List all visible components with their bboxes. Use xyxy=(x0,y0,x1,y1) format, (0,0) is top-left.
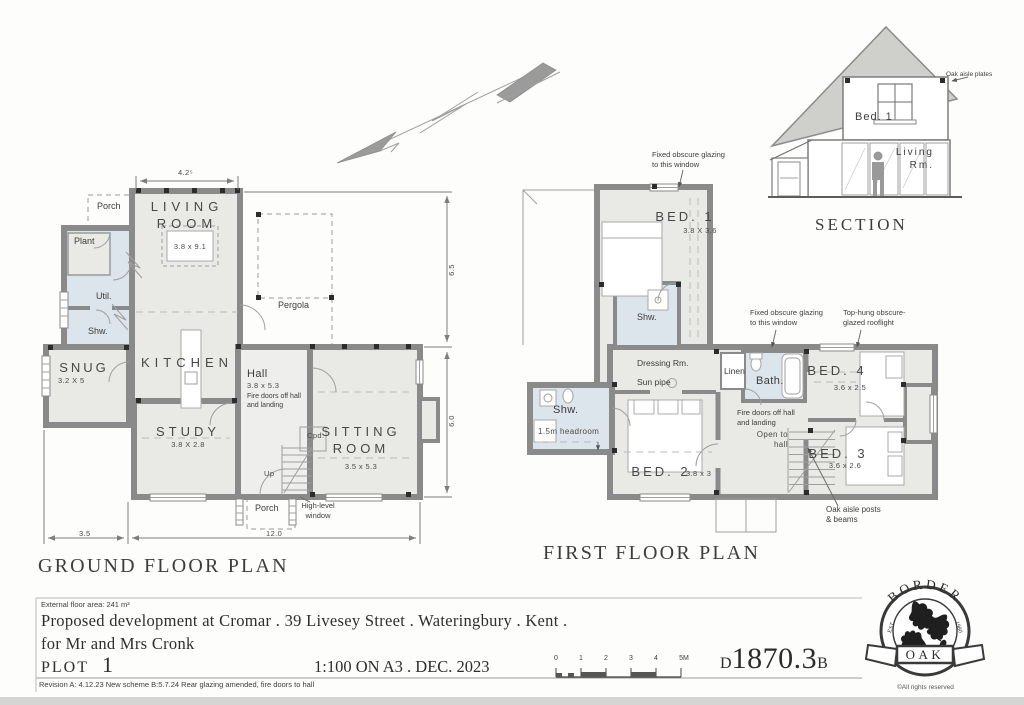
high-level-window-note: High-level window xyxy=(301,501,334,520)
bed4-label: BED. 4 xyxy=(807,363,866,380)
drawing-number: D 1870.3 B xyxy=(720,640,828,678)
dim-bottom-right: 12.0 xyxy=(266,529,282,539)
fire-doors-note-first: Fire doors off hall and landing xyxy=(737,408,795,427)
cupboard-label: Cpd. xyxy=(307,431,324,441)
bed3-dims: 3.6 x 2.6 xyxy=(829,461,861,471)
floor-area-note: External floor area: 241 m² xyxy=(41,600,130,610)
kitchen-label: KITCHEN xyxy=(141,355,233,372)
scale-text: 1:100 ON A3 . DEC. 2023 xyxy=(314,656,490,677)
living-room-label: LIVING ROOM xyxy=(151,199,224,232)
scale-tick-0: 0 xyxy=(554,655,558,664)
revision-note: Revision A: 4.12.23 New scheme B:5.7.24 … xyxy=(39,680,314,690)
bed2-dims: 3.8 x 3 xyxy=(686,469,711,479)
shower-label-ground: Shw. xyxy=(88,326,108,338)
dim-bottom-left: 3.5 xyxy=(79,529,91,539)
plant-label: Plant xyxy=(74,236,95,248)
bed4-dims: 3.6 x 2.5 xyxy=(834,383,866,393)
linen-label: Linen xyxy=(724,366,745,377)
open-to-hall-note: Open to hall xyxy=(746,430,788,450)
section-living-label: Living Rm. xyxy=(884,147,934,173)
sun-pipe-label: Sun pipe xyxy=(637,377,671,388)
north-arrow-icon xyxy=(337,63,560,163)
scale-tick-2: 2 xyxy=(604,655,608,664)
architectural-drawing-sheet: BORDER OAK EST. 1980 LIVING ROOM 3.8 x 9… xyxy=(0,0,1024,705)
hall-fire-doors-note: Fire doors off hall and landing xyxy=(247,393,301,411)
dim-top: 4.2⁵ xyxy=(178,168,193,178)
bath-label: Bath. xyxy=(756,374,784,388)
dim-right-lower: 6.0 xyxy=(447,415,457,427)
plot-number: 1 xyxy=(102,651,113,679)
plot-label: PLOT xyxy=(41,658,89,678)
living-room-dims: 3.8 x 9.1 xyxy=(174,242,206,252)
pergola-label: Pergola xyxy=(278,300,309,312)
dressing-room-label: Dressing Rm. xyxy=(637,358,688,369)
section-title: SECTION xyxy=(815,214,908,236)
snug-label: SNUG xyxy=(59,360,109,377)
copyright-note: ©All rights reserved xyxy=(897,684,954,692)
study-dims: 3.8 X 2.8 xyxy=(171,440,205,450)
study-label: STUDY xyxy=(156,424,220,441)
sitting-room-area xyxy=(310,347,420,497)
hall-label: Hall xyxy=(247,367,268,381)
bed2-label: BED. 2 xyxy=(631,464,690,481)
headroom-note: 1.5m headroom xyxy=(538,427,599,437)
shower-left-label: Shw. xyxy=(553,403,578,417)
sitting-room-label: SITTING ROOM xyxy=(321,424,400,457)
fireplace-bay xyxy=(420,399,438,441)
logo-banner-text: OAK xyxy=(906,647,945,662)
oak-aisle-plates-note: Oak aisle plates xyxy=(946,71,992,79)
porch-bottom-label: Porch xyxy=(255,503,279,515)
snug-dims: 3.2 X 5 xyxy=(58,376,85,386)
sitting-room-dims: 3.5 x 5.3 xyxy=(345,462,377,472)
first-bay xyxy=(905,385,933,442)
ground-floor-title: GROUND FLOOR PLAN xyxy=(38,554,289,580)
section-bed1-label: Bed. 1 xyxy=(855,110,893,124)
scale-tick-1: 1 xyxy=(579,655,583,664)
first-floor-title: FIRST FLOOR PLAN xyxy=(543,541,760,567)
oak-posts-note: Oak aisle posts & beams xyxy=(826,505,881,525)
project-title-line2: for Mr and Mrs Cronk xyxy=(41,633,195,654)
drawing-number-main: 1870.3 xyxy=(732,640,818,678)
scale-tick-5: 5M xyxy=(679,655,689,664)
rooflight-note: Top-hung obscure- glazed rooflight xyxy=(843,308,906,327)
scale-bar xyxy=(556,668,681,677)
dim-right-upper: 6.5 xyxy=(447,264,457,276)
bed1-label: BED. 1 xyxy=(655,209,714,226)
stairs-up-label: Up xyxy=(264,469,274,479)
scale-tick-4: 4 xyxy=(654,655,658,664)
project-title-line1: Proposed development at Cromar . 39 Live… xyxy=(41,610,567,631)
glazing-note-bath: Fixed obscure glazing to this window xyxy=(750,308,823,327)
bed1-dims: 3.8 X 3.6 xyxy=(683,226,717,236)
border-oak-logo: BORDER OAK EST. 1980 xyxy=(866,577,984,675)
drawing-linework: BORDER OAK EST. 1980 xyxy=(0,0,1024,705)
shower-top-label: Shw. xyxy=(637,312,657,324)
util-label: Util. xyxy=(96,291,112,303)
snug-area xyxy=(46,347,129,425)
porch-top-label: Porch xyxy=(97,201,121,213)
drawing-number-suffix: B xyxy=(817,654,828,674)
glazing-note-bed1: Fixed obscure glazing to this window xyxy=(652,150,725,169)
hall-dims: 3.8 x 5.3 xyxy=(247,381,279,391)
drawing-number-prefix: D xyxy=(720,654,732,674)
scale-tick-3: 3 xyxy=(629,655,633,664)
